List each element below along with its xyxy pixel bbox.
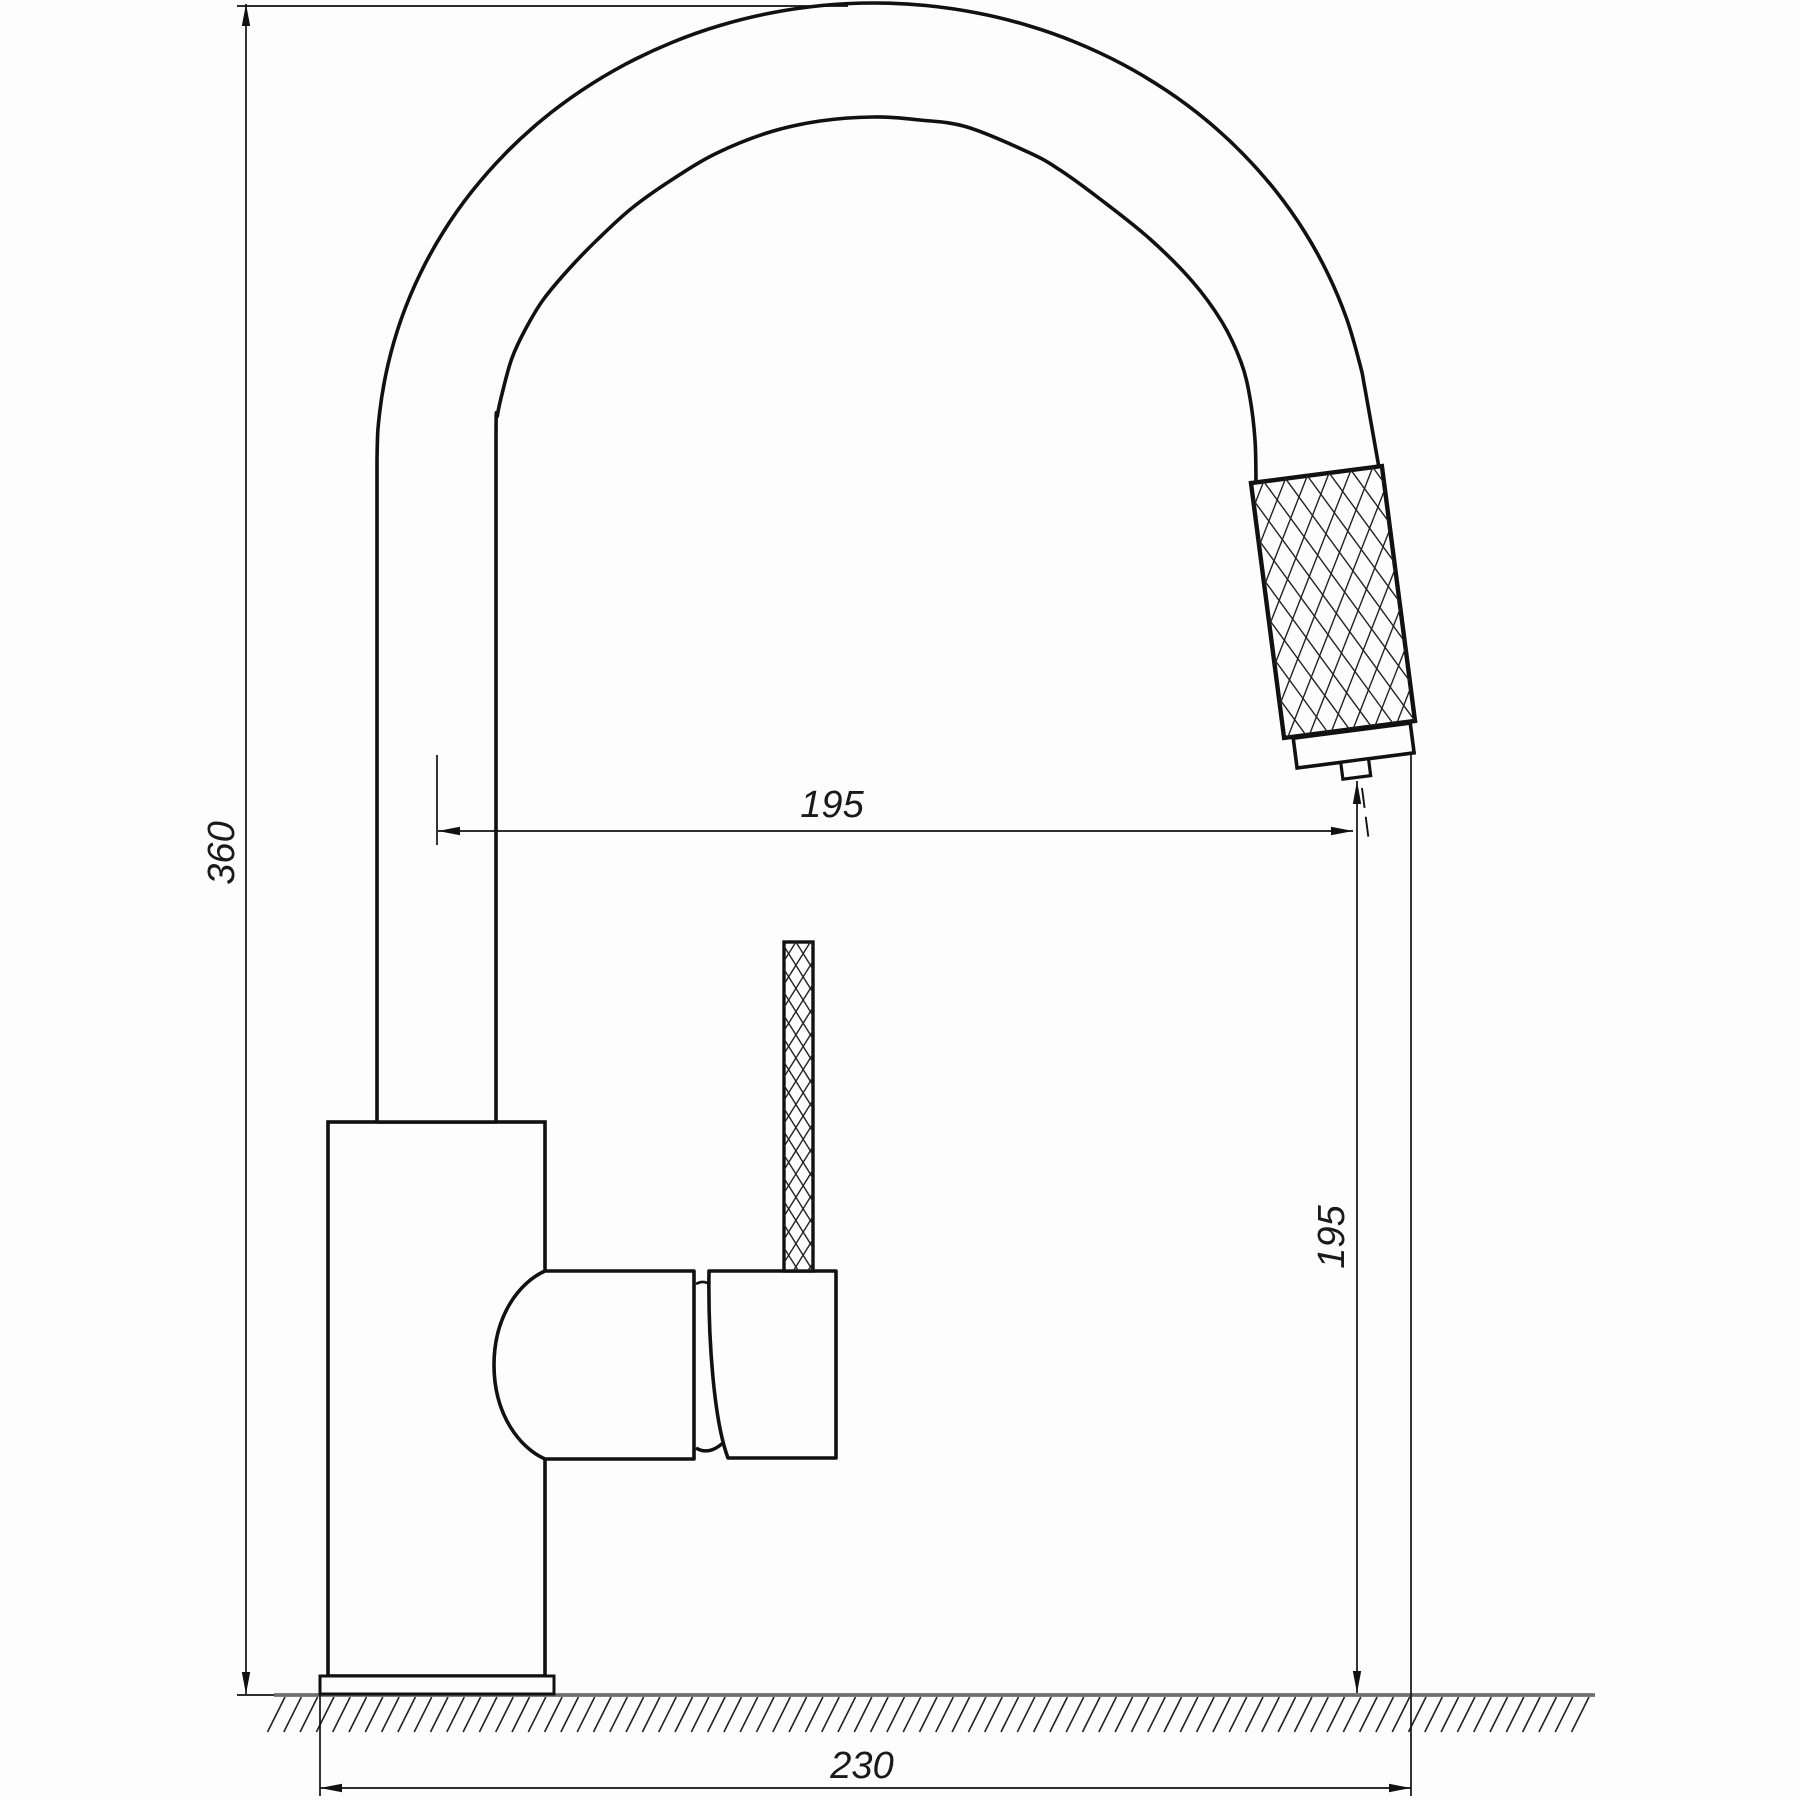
svg-text:195: 195 [1311, 1204, 1353, 1268]
svg-text:230: 230 [829, 1745, 893, 1787]
svg-text:195: 195 [800, 784, 864, 826]
svg-text:360: 360 [201, 821, 243, 884]
